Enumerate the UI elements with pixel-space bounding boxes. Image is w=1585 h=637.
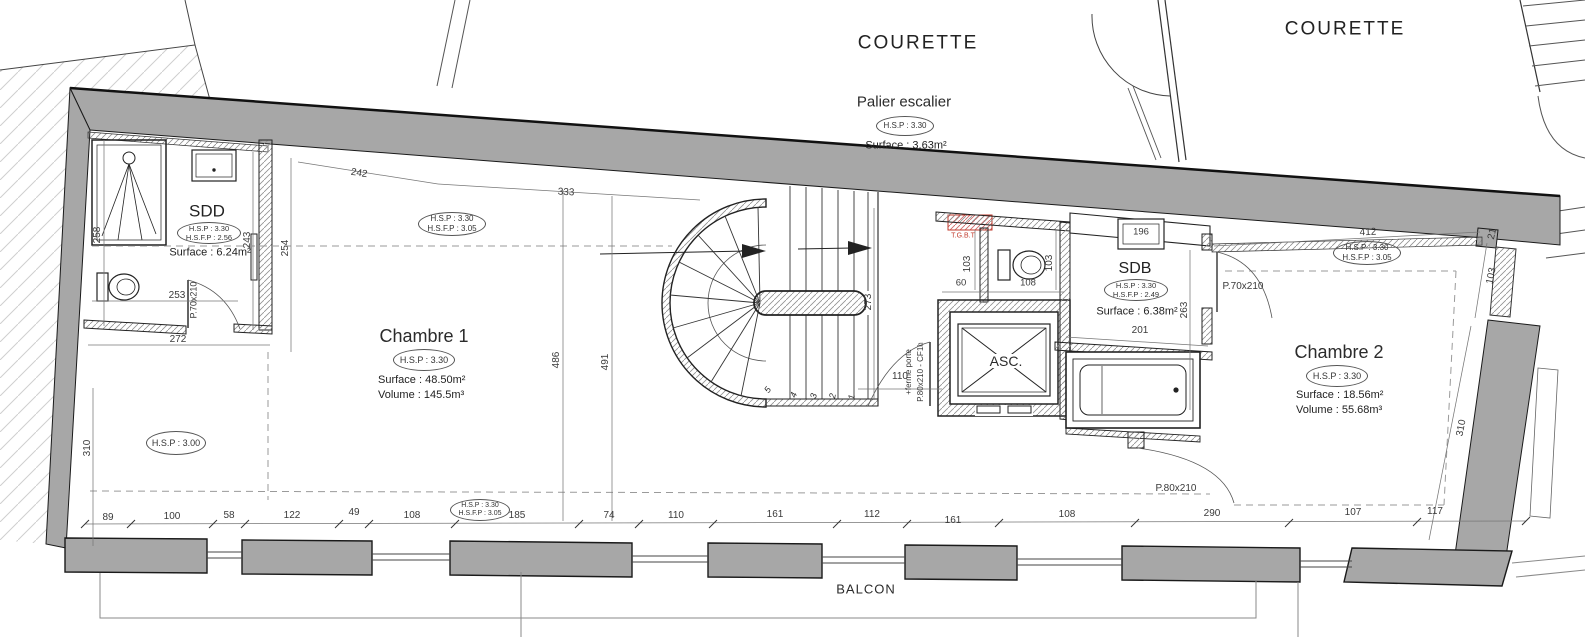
shower-icon	[92, 140, 166, 245]
dimension-label: 185	[509, 511, 526, 521]
chambre1-hsp-oval: H.S.P : 3.30	[393, 349, 455, 371]
floor-plan-drawing	[0, 0, 1585, 637]
dimension-label: 486	[552, 352, 562, 369]
chambre2-label: Chambre 2	[1294, 343, 1383, 361]
balcon-label: BALCON	[836, 583, 895, 596]
sink-icon	[192, 150, 236, 181]
dimension-label: 108	[1020, 278, 1036, 288]
bottom-wall	[65, 538, 1512, 586]
dimension-label: 201	[1132, 326, 1149, 336]
dimension-label: 103	[1045, 255, 1055, 272]
dimension-label: 412	[1359, 228, 1376, 239]
sdd-hsp-oval: H.S.P : 3.30H.S.F.P : 2.56	[177, 222, 241, 244]
dimension-label: 107	[1345, 508, 1362, 518]
dimension-label: 103	[963, 256, 973, 273]
door-label-fire-door-2: +ferme porte	[905, 349, 913, 395]
dimension-label: 253	[169, 291, 186, 301]
dimension-label: 196	[1131, 227, 1151, 237]
dimension-label: 112	[864, 510, 880, 520]
sdd-label: SDD	[189, 203, 225, 220]
common-stair-landing	[1092, 0, 1186, 162]
palier-hsp-oval: H.S.P : 3.30	[876, 116, 934, 136]
hsp-300-oval: H.S.P : 3.00	[146, 431, 206, 455]
dimension-label: 333	[557, 188, 574, 199]
dimension-label: 258	[93, 227, 103, 244]
dimension-label: 89	[102, 513, 113, 523]
chambre1-top-oval: H.S.P : 3.30H.S.F.P : 3.05	[418, 212, 486, 236]
chambre1-volume: Volume : 145.5m³	[378, 390, 464, 401]
dimension-label: 161	[767, 510, 784, 520]
sdb-hsp-oval: H.S.P : 3.30H.S.F.P : 2.49	[1104, 279, 1168, 301]
dimension-label: 58	[223, 511, 234, 521]
dimension-label: 254	[281, 240, 291, 257]
door-arc	[1138, 448, 1234, 503]
elevator-label: ASC.	[988, 354, 1025, 368]
dimension-label: 491	[601, 354, 611, 371]
dimension-label: 49	[348, 508, 359, 518]
floor-plan: COURETTE COURETTE Palier escalier H.S.P …	[0, 0, 1585, 637]
dimension-label: 161	[945, 516, 962, 526]
courette-left-label: COURETTE	[858, 34, 979, 53]
dimension-label: 243	[243, 232, 253, 249]
chambre2-hsp-oval: H.S.P : 3.30	[1306, 365, 1368, 387]
palier-escalier-label: Palier escalier	[857, 95, 951, 110]
chambre1-label: Chambre 1	[379, 327, 468, 345]
sdd-surface: Surface : 6.24m²	[169, 248, 250, 259]
dimension-label: 272	[170, 335, 187, 345]
door-label-sdd: P.70x210	[190, 282, 199, 319]
dimension-label: 122	[284, 511, 301, 521]
bathtub-icon	[1066, 352, 1200, 428]
courette-right-label: COURETTE	[1285, 20, 1406, 39]
dimension-label: 263	[1180, 302, 1190, 319]
chambre1-surface: Surface : 48.50m²	[378, 375, 465, 386]
toilet-icon	[97, 273, 139, 301]
door-label-chambre2: P.80x210	[1156, 484, 1197, 494]
dimension-label: 108	[404, 511, 421, 521]
sdb-surface: Surface : 6.38m²	[1096, 307, 1177, 318]
dimension-label: 74	[603, 511, 614, 521]
palier-surface: Surface : 3.63m²	[865, 141, 946, 152]
bottom-hsp-oval: H.S.P : 3.30H.S.F.P : 3.05	[450, 499, 510, 521]
spiral-staircase	[600, 186, 878, 407]
chambre2-top-oval: H.S.P : 3.30H.S.F.P : 3.05	[1333, 241, 1401, 265]
dimension-label: 100	[164, 512, 181, 522]
tgbt-label: T.G.B.T	[951, 233, 975, 240]
stair-handrail	[754, 291, 866, 315]
dimension-label: 310	[83, 440, 93, 457]
stair-tread-number: 1	[847, 394, 857, 400]
dimension-label: 60	[956, 278, 967, 288]
toilet-icon	[998, 250, 1045, 280]
door-arc	[1092, 14, 1170, 96]
door-label-sdb: P.70x210	[1223, 282, 1264, 292]
sdb-label: SDB	[1119, 261, 1152, 277]
chambre2-surface: Surface : 18.56m²	[1296, 390, 1383, 401]
chambre2-volume: Volume : 55.68m³	[1296, 405, 1382, 416]
door-label-fire-door: P.80x210 - CF1h	[917, 342, 925, 401]
dimension-label: 110	[668, 511, 684, 521]
dimension-label: 273	[864, 294, 874, 311]
dimension-label: 117	[1427, 507, 1443, 517]
dimension-label: 290	[1204, 509, 1221, 519]
dimension-label: 108	[1059, 510, 1076, 520]
exterior-walls	[46, 88, 1560, 584]
